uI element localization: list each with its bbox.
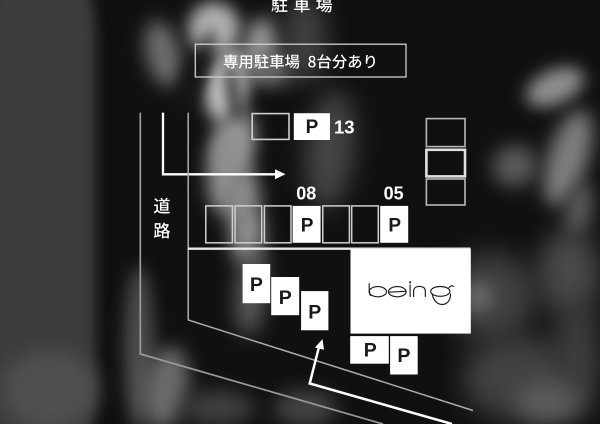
svg-text:08: 08: [296, 184, 316, 204]
svg-text:P: P: [250, 274, 263, 296]
svg-text:P: P: [364, 340, 377, 362]
svg-text:P: P: [301, 216, 314, 237]
svg-text:P: P: [279, 287, 292, 309]
svg-text:P: P: [397, 345, 410, 367]
svg-text:05: 05: [384, 184, 404, 204]
svg-text:P: P: [388, 216, 401, 237]
svg-text:P: P: [306, 117, 319, 138]
svg-text:P: P: [308, 301, 321, 323]
svg-text:13: 13: [334, 117, 355, 138]
